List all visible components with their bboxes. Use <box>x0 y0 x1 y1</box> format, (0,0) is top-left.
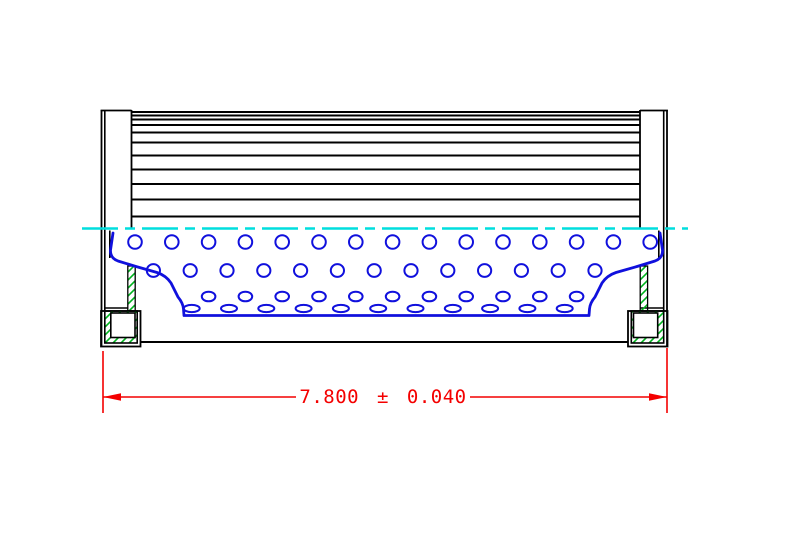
perforation-hole <box>404 264 417 277</box>
perforation-hole <box>275 292 289 302</box>
perforation-hole <box>386 292 400 302</box>
perforation-hole <box>296 305 312 312</box>
perforation-hole <box>221 305 237 312</box>
perforated-core <box>110 233 662 316</box>
perforation-hole <box>408 305 424 312</box>
perforation-hole <box>184 264 197 277</box>
perforation-hole <box>588 264 601 277</box>
perforation-hole <box>496 292 510 302</box>
perforation-hole <box>239 235 253 249</box>
perforation-hole <box>496 235 510 249</box>
perforation-hole <box>184 305 200 312</box>
perforation-holes <box>128 235 657 312</box>
right-cap-section-strip <box>640 266 647 311</box>
dimension-text: 7.800 ± 0.040 <box>299 386 466 408</box>
perforation-hole <box>386 235 400 249</box>
perforation-hole <box>459 235 473 249</box>
perforation-hole <box>441 264 454 277</box>
perforation-hole <box>519 305 535 312</box>
perforation-hole <box>239 292 253 302</box>
perforation-hole <box>294 264 307 277</box>
perforation-hole <box>202 292 216 302</box>
perforation-hole <box>515 264 528 277</box>
perforation-hole <box>368 264 381 277</box>
perforation-hole <box>478 264 491 277</box>
perforation-hole <box>533 235 547 249</box>
perforation-hole <box>370 305 386 312</box>
perforation-hole <box>349 292 363 302</box>
perforation-hole <box>202 235 216 249</box>
perforation-hole <box>275 235 289 249</box>
technical-drawing: 7.800 ± 0.040 <box>0 0 789 546</box>
perforation-hole <box>607 235 621 249</box>
perforation-hole <box>557 305 573 312</box>
perforation-hole <box>257 264 270 277</box>
dimension-arrow-left <box>103 393 121 400</box>
perforation-hole <box>333 305 349 312</box>
perforation-hole <box>482 305 498 312</box>
perforation-hole <box>423 292 437 302</box>
perforation-hole <box>349 235 363 249</box>
perforation-hole <box>533 292 547 302</box>
perforation-hole <box>165 235 179 249</box>
perforation-hole <box>552 264 565 277</box>
perforation-hole <box>258 305 274 312</box>
perforation-hole <box>220 264 233 277</box>
perforation-hole <box>423 235 437 249</box>
perforation-hole <box>459 292 473 302</box>
left-cap-section-strip <box>128 266 135 311</box>
perforation-hole <box>643 235 657 249</box>
dimension-annotation: 7.800 ± 0.040 <box>103 348 667 413</box>
perforation-hole <box>312 292 326 302</box>
perforation-hole <box>445 305 461 312</box>
perforation-hole <box>331 264 344 277</box>
pleat-media-lines <box>132 112 641 217</box>
perforation-hole <box>312 235 326 249</box>
right-foot-cavity <box>634 313 658 338</box>
perforation-hole <box>570 292 584 302</box>
dimension-arrow-right <box>649 393 667 400</box>
left-foot-cavity <box>111 313 135 338</box>
perforation-hole <box>128 235 142 249</box>
perforation-hole <box>570 235 584 249</box>
drawing-canvas: 7.800 ± 0.040 <box>0 0 789 546</box>
